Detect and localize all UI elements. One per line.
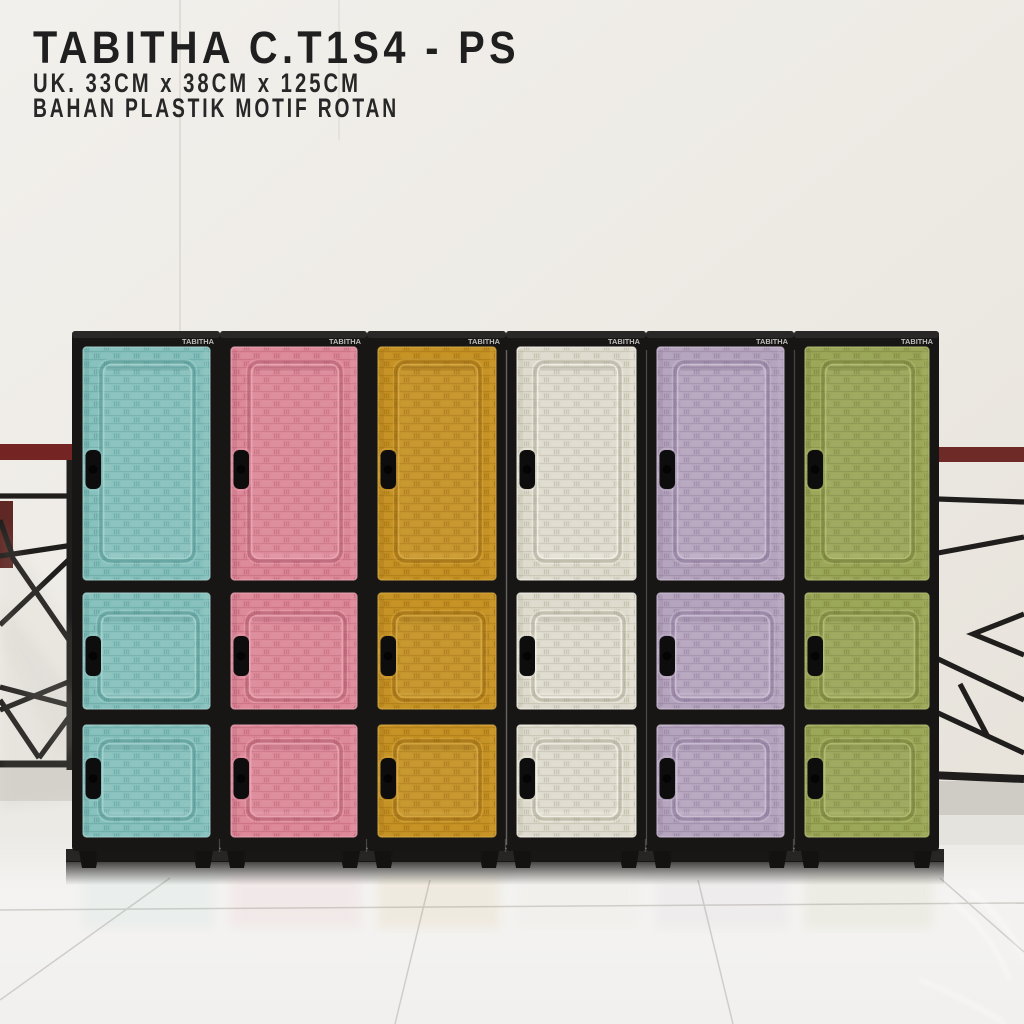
svg-text:TABITHA: TABITHA: [468, 337, 501, 346]
svg-text:TABITHA: TABITHA: [608, 337, 641, 346]
svg-text:TABITHA: TABITHA: [756, 337, 789, 346]
svg-text:TABITHA C.T1S4 - PS: TABITHA C.T1S4 - PS: [33, 22, 520, 73]
svg-text:BAHAN PLASTIK MOTIF ROTAN: BAHAN PLASTIK MOTIF ROTAN: [33, 93, 399, 123]
svg-text:TABITHA: TABITHA: [901, 337, 934, 346]
svg-text:TABITHA: TABITHA: [182, 337, 215, 346]
svg-text:TABITHA: TABITHA: [329, 337, 362, 346]
